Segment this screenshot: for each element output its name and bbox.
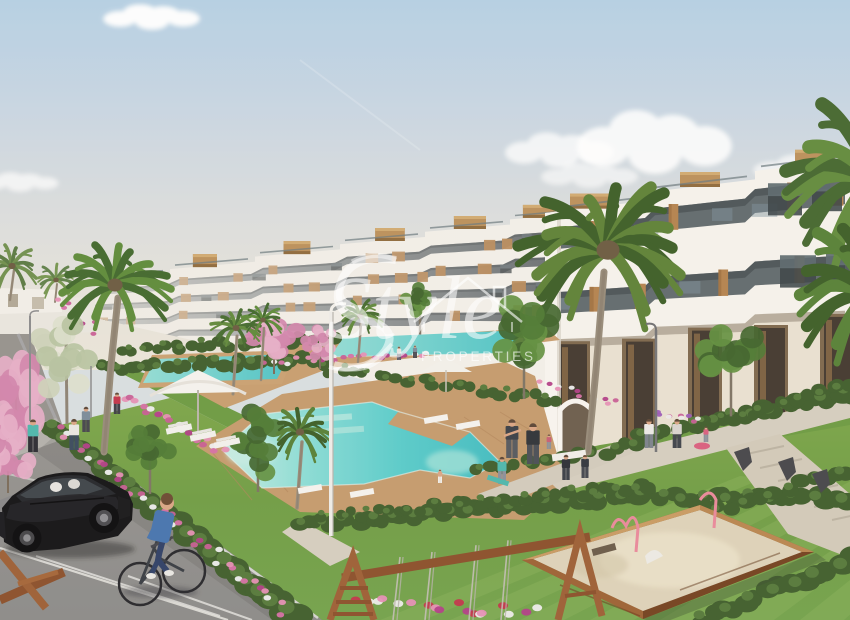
svg-text:Style: Style	[327, 259, 502, 358]
svg-text:PROPERTIES: PROPERTIES	[421, 349, 536, 364]
